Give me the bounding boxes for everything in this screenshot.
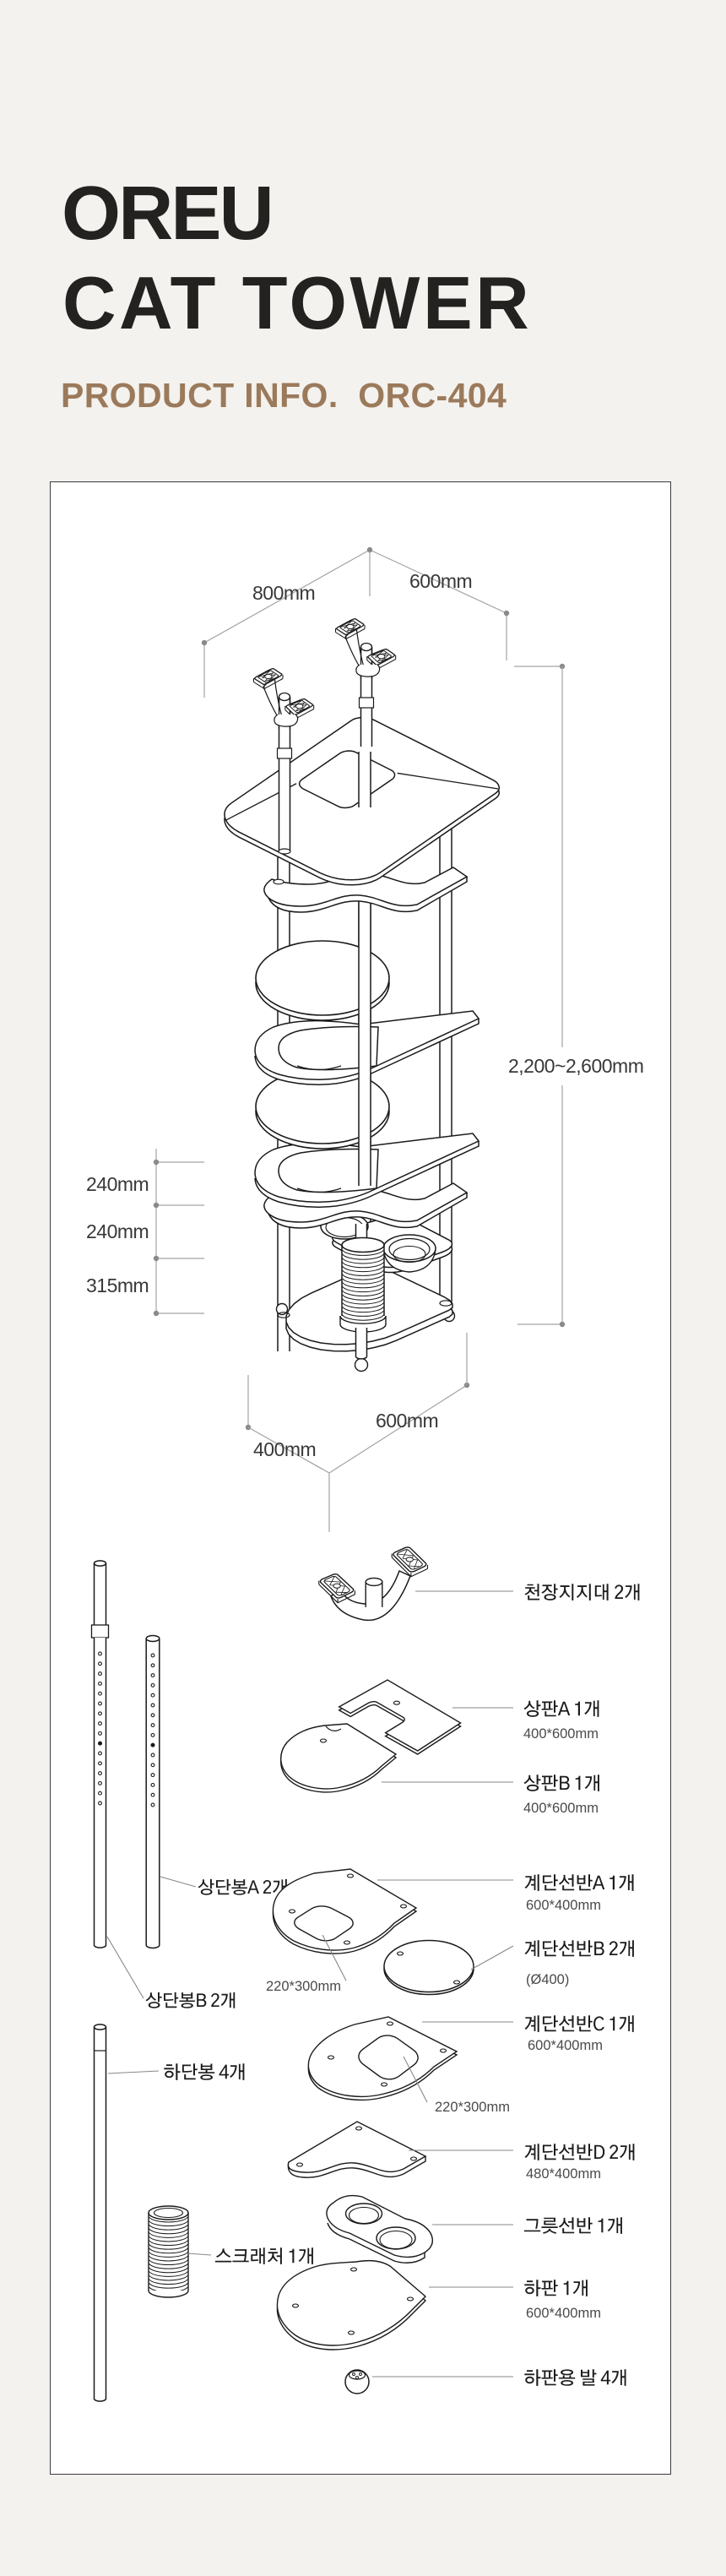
- svg-text:220*300mm: 220*300mm: [266, 1979, 341, 1994]
- svg-text:315mm: 315mm: [86, 1274, 149, 1296]
- svg-text:600*400mm: 600*400mm: [528, 2038, 603, 2053]
- svg-text:OREU: OREU: [62, 171, 272, 256]
- svg-text:CAT TOWER: CAT TOWER: [62, 261, 532, 345]
- svg-text:600mm: 600mm: [376, 1410, 438, 1432]
- svg-text:800mm: 800mm: [252, 582, 315, 604]
- svg-text:240mm: 240mm: [86, 1173, 149, 1195]
- svg-text:600mm: 600mm: [409, 570, 472, 592]
- svg-text:(Ø400): (Ø400): [526, 1972, 569, 1987]
- svg-text:400*600mm: 400*600mm: [523, 1801, 599, 1816]
- svg-text:400mm: 400mm: [253, 1438, 316, 1460]
- svg-text:PRODUCT INFO. ORC-404: PRODUCT INFO. ORC-404: [61, 376, 507, 415]
- svg-text:2,200~2,600mm: 2,200~2,600mm: [508, 1055, 643, 1077]
- svg-text:480*400mm: 480*400mm: [526, 2166, 601, 2182]
- svg-text:220*300mm: 220*300mm: [435, 2100, 510, 2115]
- svg-text:240mm: 240mm: [86, 1220, 149, 1242]
- svg-text:600*400mm: 600*400mm: [526, 1898, 601, 1913]
- svg-text:400*600mm: 400*600mm: [523, 1726, 599, 1742]
- svg-text:600*400mm: 600*400mm: [526, 2306, 601, 2321]
